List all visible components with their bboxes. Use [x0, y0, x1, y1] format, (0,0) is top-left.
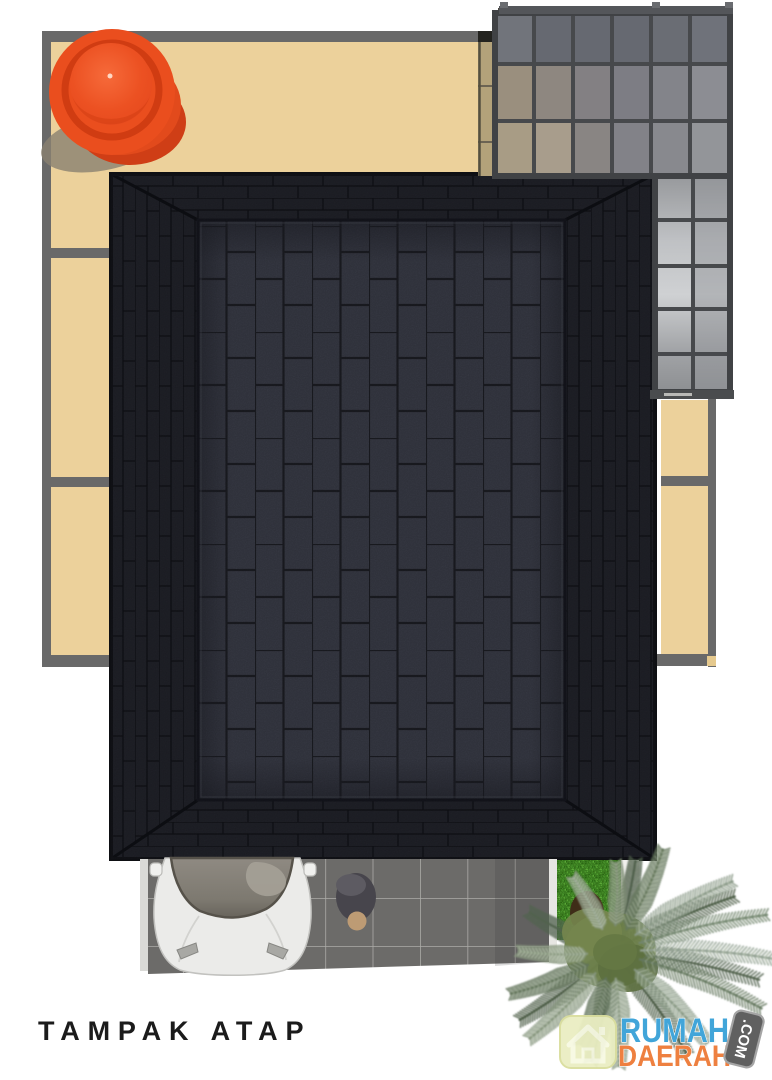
- svg-text:TAMPAK ATAP: TAMPAK ATAP: [38, 1016, 311, 1046]
- svg-text:DAERAH: DAERAH: [618, 1040, 731, 1073]
